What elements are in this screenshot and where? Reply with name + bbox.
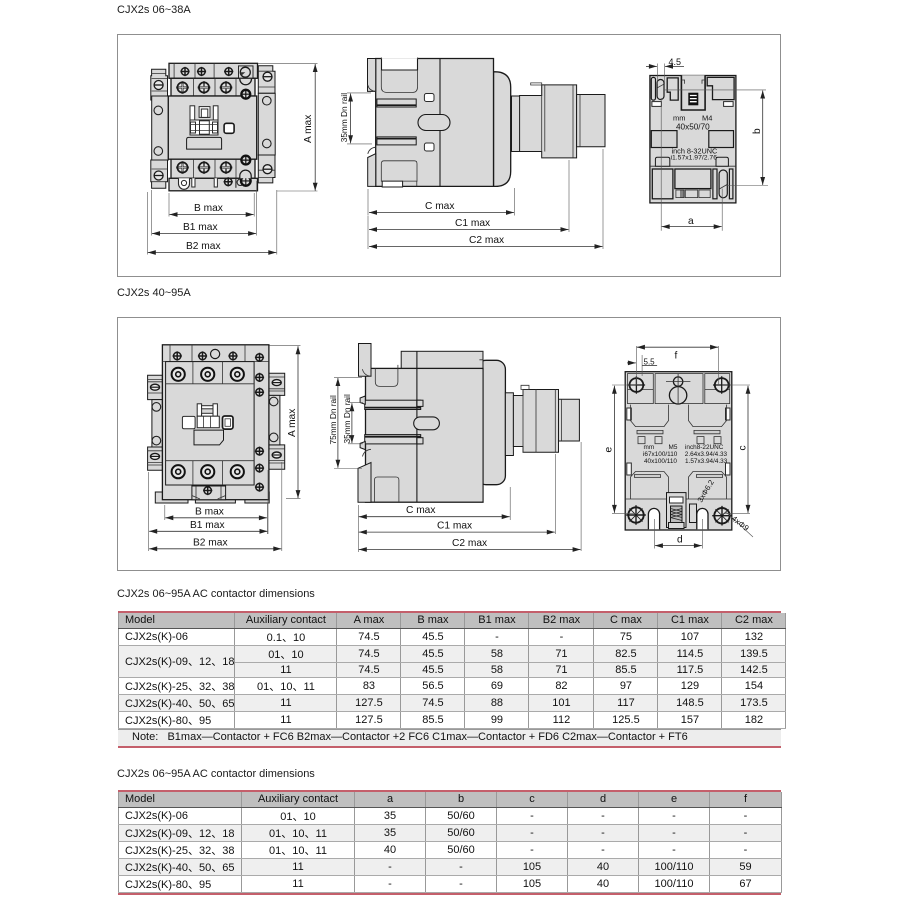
svg-text:B2 max: B2 max bbox=[193, 537, 228, 548]
svg-text:5.5: 5.5 bbox=[644, 357, 656, 366]
svg-text:A max: A max bbox=[303, 115, 314, 143]
svg-text:e: e bbox=[604, 447, 615, 453]
svg-text:B2 max: B2 max bbox=[186, 241, 221, 252]
svg-text:35mm Dn rail: 35mm Dn rail bbox=[342, 394, 352, 443]
svg-text:c: c bbox=[738, 445, 749, 450]
svg-text:A max: A max bbox=[287, 409, 298, 437]
svg-text:C max: C max bbox=[425, 201, 454, 212]
svg-text:35mm Dn rail: 35mm Dn rail bbox=[339, 93, 349, 142]
svg-text:d: d bbox=[677, 534, 683, 545]
svg-text:mm: mm bbox=[673, 113, 686, 122]
svg-text:C1 max: C1 max bbox=[437, 521, 472, 532]
svg-text:C2 max: C2 max bbox=[469, 235, 504, 246]
svg-text:M5: M5 bbox=[669, 444, 678, 451]
svg-text:4.5: 4.5 bbox=[669, 57, 682, 67]
svg-text:40x100/110: 40x100/110 bbox=[644, 458, 677, 465]
svg-text:a: a bbox=[688, 216, 694, 227]
svg-text:B max: B max bbox=[194, 203, 223, 214]
svg-text:4xΦ9: 4xΦ9 bbox=[730, 514, 751, 533]
svg-text:f: f bbox=[675, 351, 678, 362]
svg-text:b: b bbox=[752, 128, 763, 134]
svg-text:i67x100/110: i67x100/110 bbox=[643, 451, 678, 458]
svg-text:B1 max: B1 max bbox=[183, 222, 218, 233]
svg-text:M4: M4 bbox=[702, 113, 712, 122]
svg-text:2.64x3.94/4.33: 2.64x3.94/4.33 bbox=[685, 451, 728, 458]
svg-text:40x50/70: 40x50/70 bbox=[676, 122, 710, 131]
svg-text:inch8-22UNC: inch8-22UNC bbox=[685, 444, 724, 451]
svg-text:C2 max: C2 max bbox=[452, 538, 487, 549]
svg-text:B max: B max bbox=[195, 506, 224, 517]
svg-text:C1 max: C1 max bbox=[455, 218, 490, 229]
svg-text:C max: C max bbox=[406, 505, 435, 516]
svg-text:mm: mm bbox=[644, 444, 655, 451]
svg-text:i1.57x1.97/2.76: i1.57x1.97/2.76 bbox=[671, 155, 718, 162]
svg-text:B1 max: B1 max bbox=[190, 520, 225, 531]
svg-text:1.57x3.94/4.33: 1.57x3.94/4.33 bbox=[685, 458, 728, 465]
svg-text:75mm Dn rail: 75mm Dn rail bbox=[328, 395, 338, 444]
